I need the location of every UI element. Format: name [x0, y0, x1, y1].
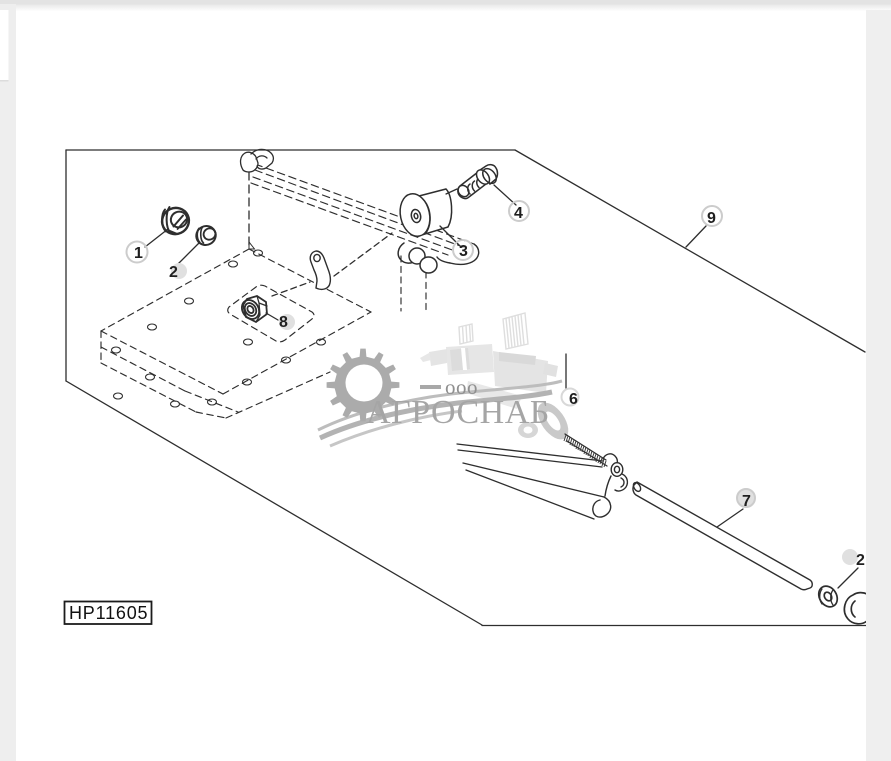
- svg-text:6: 6: [569, 391, 578, 408]
- svg-text:9: 9: [707, 210, 716, 227]
- svg-text:2: 2: [856, 552, 865, 569]
- svg-text:HP11605: HP11605: [69, 603, 148, 623]
- svg-text:2: 2: [169, 264, 178, 281]
- svg-text:АГРОСНАБ: АГРОСНАБ: [366, 394, 550, 431]
- svg-text:4: 4: [514, 205, 523, 222]
- svg-text:1: 1: [134, 245, 143, 262]
- svg-text:8: 8: [279, 314, 288, 331]
- svg-text:3: 3: [459, 243, 468, 260]
- svg-text:7: 7: [742, 493, 751, 510]
